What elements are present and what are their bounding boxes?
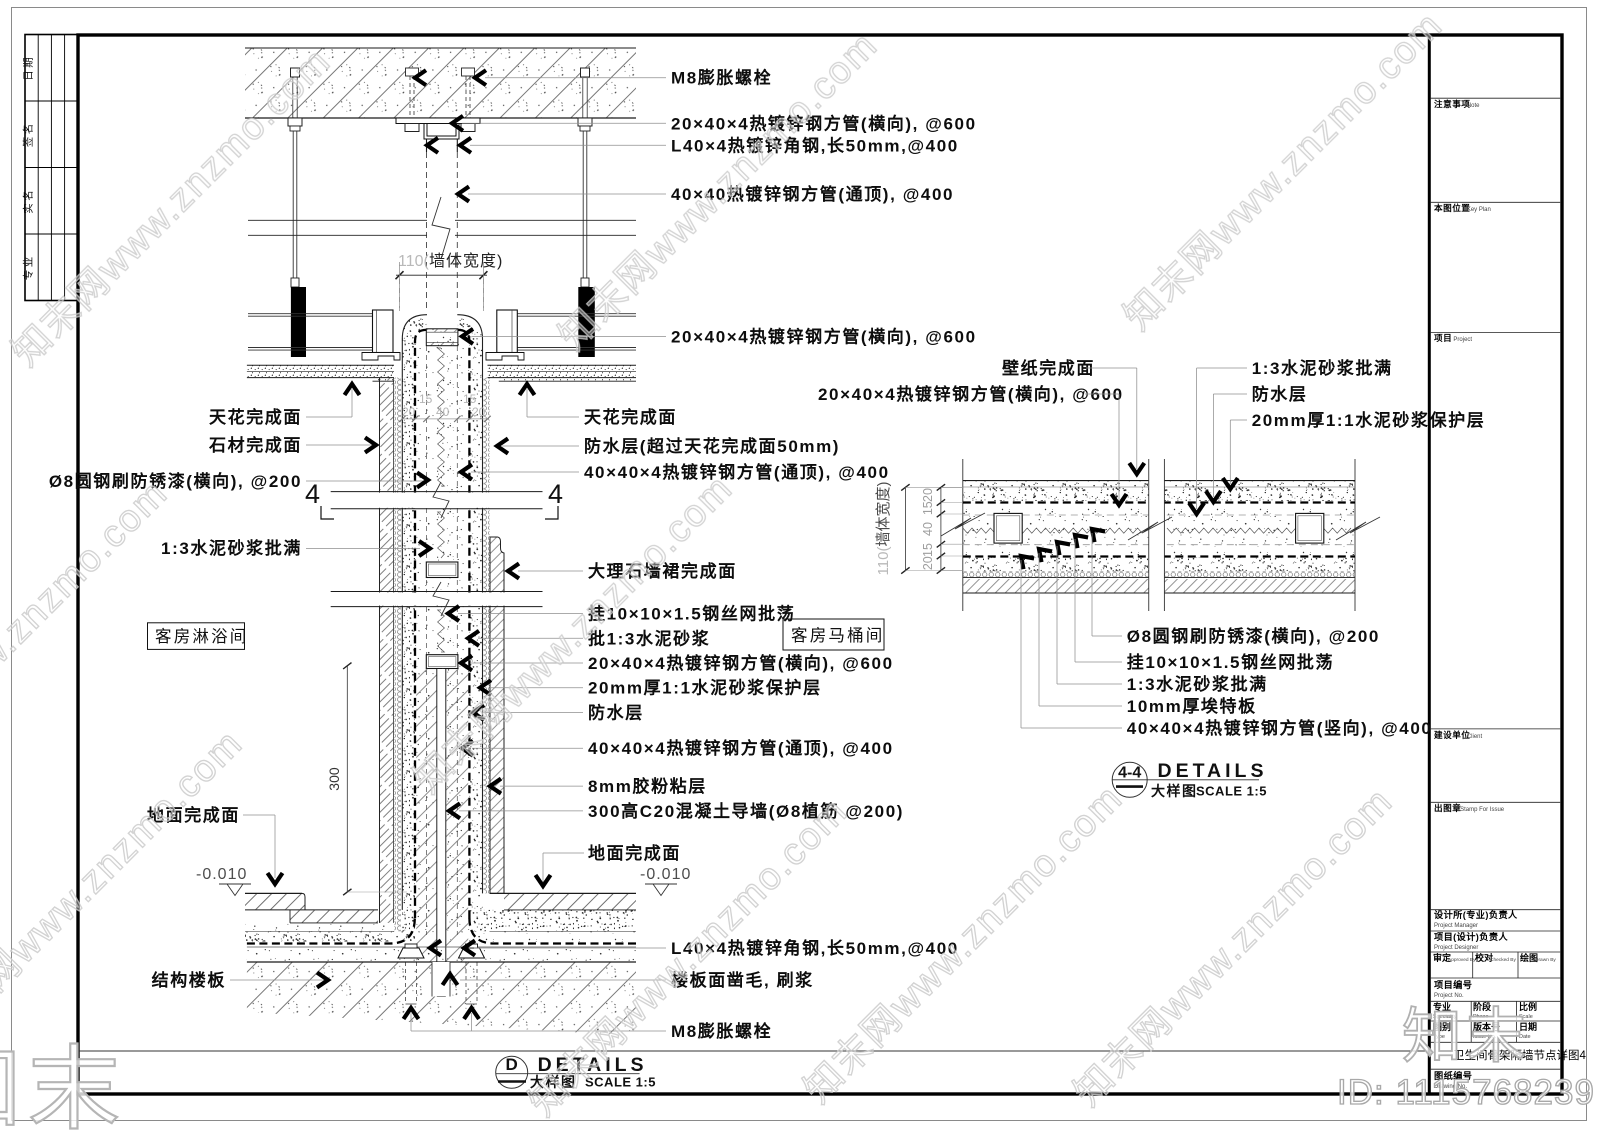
svg-text:ID: 1115768239: ID: 1115768239 — [1337, 1073, 1595, 1112]
svg-text:项目编号: 项目编号 — [1434, 979, 1472, 990]
svg-text:项目(设计)负责人: 项目(设计)负责人 — [1434, 931, 1508, 942]
svg-text:8mm胶粉粘层: 8mm胶粉粘层 — [588, 776, 707, 796]
svg-text:Project: Project — [1453, 337, 1472, 343]
svg-text:防水层: 防水层 — [1252, 384, 1308, 404]
svg-text:40: 40 — [436, 405, 450, 419]
svg-text:墙体宽度): 墙体宽度) — [429, 252, 503, 270]
svg-text:Project Designer: Project Designer — [1434, 945, 1478, 951]
svg-text:签名: 签名 — [22, 121, 35, 147]
svg-text:地面完成面: 地面完成面 — [588, 843, 681, 863]
svg-text:1:3水泥砂浆批满: 1:3水泥砂浆批满 — [1127, 674, 1268, 694]
svg-text:Project Manager: Project Manager — [1434, 923, 1478, 929]
svg-text:石材完成面: 石材完成面 — [208, 435, 302, 455]
svg-text:Approved By: Approved By — [1448, 957, 1476, 963]
svg-text:Client: Client — [1467, 734, 1483, 740]
svg-text:设计所(专业)负责人: 设计所(专业)负责人 — [1434, 909, 1518, 920]
svg-text:40×40×4热镀锌钢方管(竖向), @400: 40×40×4热镀锌钢方管(竖向), @400 — [1127, 718, 1433, 738]
svg-text:-0.010: -0.010 — [640, 866, 691, 883]
svg-text:知末: 知末 — [0, 1039, 126, 1131]
svg-text:项目: 项目 — [1434, 333, 1452, 343]
svg-text:防水层(超过天花完成面50mm): 防水层(超过天花完成面50mm) — [584, 436, 840, 456]
svg-text:Project No.: Project No. — [1434, 993, 1464, 999]
svg-text:20×40×4热镀锌钢方管(横向), @600: 20×40×4热镀锌钢方管(横向), @600 — [671, 113, 977, 133]
svg-text:客房淋浴间: 客房淋浴间 — [155, 627, 249, 646]
svg-text:Key Plan: Key Plan — [1467, 207, 1491, 213]
svg-text:壁纸完成面: 壁纸完成面 — [1002, 358, 1095, 378]
svg-text:20mm厚1:1水泥砂浆保护层: 20mm厚1:1水泥砂浆保护层 — [588, 678, 822, 698]
svg-text:防水层: 防水层 — [588, 703, 644, 723]
svg-text:15: 15 — [463, 392, 477, 406]
svg-text:L40×4热镀锌角钢,长50mm,@400: L40×4热镀锌角钢,长50mm,@400 — [671, 135, 959, 155]
svg-text:20: 20 — [921, 488, 935, 502]
svg-text:Ø8圆钢刷防锈漆(横向), @200: Ø8圆钢刷防锈漆(横向), @200 — [1127, 626, 1380, 646]
svg-text:挂10×10×1.5钢丝网批荡: 挂10×10×1.5钢丝网批荡 — [1127, 652, 1334, 672]
svg-text:日期: 日期 — [23, 55, 35, 81]
svg-text:大样图: 大样图 — [1151, 783, 1198, 799]
svg-text:15: 15 — [921, 501, 935, 515]
svg-text:注意事项: 注意事项 — [1434, 98, 1470, 109]
svg-text:40: 40 — [921, 522, 935, 536]
svg-text:SCALE 1:5: SCALE 1:5 — [1196, 784, 1267, 799]
svg-text:300高C20混凝土导墙(Ø8植筋 @200): 300高C20混凝土导墙(Ø8植筋 @200) — [588, 801, 904, 821]
svg-text:20mm厚1:1水泥砂浆保护层: 20mm厚1:1水泥砂浆保护层 — [1252, 410, 1486, 430]
svg-text:15: 15 — [419, 392, 433, 406]
svg-text:1:3水泥砂浆批满: 1:3水泥砂浆批满 — [161, 538, 302, 558]
svg-text:实名: 实名 — [22, 188, 35, 214]
svg-text:知末: 知末 — [1402, 1003, 1530, 1070]
svg-text:专业: 专业 — [22, 254, 35, 280]
svg-text:110(: 110( — [398, 253, 430, 270]
svg-text:1:3水泥砂浆批满: 1:3水泥砂浆批满 — [1252, 358, 1393, 378]
svg-text:Note: Note — [1467, 103, 1480, 109]
svg-text:15: 15 — [921, 543, 935, 557]
svg-text:出图章: 出图章 — [1434, 802, 1461, 813]
svg-text:20: 20 — [472, 405, 486, 419]
svg-text:20×40×4热镀锌钢方管(横向), @600: 20×40×4热镀锌钢方管(横向), @600 — [588, 653, 894, 673]
svg-text:-0.010: -0.010 — [196, 866, 247, 883]
svg-text:20×40×4热镀锌钢方管(横向), @600: 20×40×4热镀锌钢方管(横向), @600 — [671, 326, 977, 346]
svg-text:300: 300 — [326, 767, 342, 791]
svg-text:M8膨胀螺栓: M8膨胀螺栓 — [671, 68, 772, 88]
svg-text:40×40×4热镀锌钢方管(通顶), @400: 40×40×4热镀锌钢方管(通顶), @400 — [588, 738, 894, 758]
svg-text:天花完成面: 天花完成面 — [584, 407, 677, 427]
svg-text:DETAILS: DETAILS — [1158, 760, 1268, 782]
svg-text:20: 20 — [921, 556, 935, 570]
svg-text:Stamp For Issue: Stamp For Issue — [1460, 807, 1505, 813]
svg-text:4: 4 — [305, 479, 320, 509]
svg-text:4-4: 4-4 — [1118, 765, 1141, 782]
svg-text:110(墙体宽度): 110(墙体宽度) — [875, 482, 892, 576]
svg-text:结构楼板: 结构楼板 — [152, 970, 226, 990]
svg-text:4: 4 — [548, 479, 563, 509]
svg-text:M8膨胀螺栓: M8膨胀螺栓 — [671, 1021, 772, 1041]
svg-text:D: D — [506, 1055, 518, 1074]
svg-text:天花完成面: 天花完成面 — [209, 407, 302, 427]
svg-text:客房马桶间: 客房马桶间 — [791, 626, 885, 645]
svg-text:40×40×4热镀锌钢方管(通顶), @400: 40×40×4热镀锌钢方管(通顶), @400 — [584, 462, 890, 482]
svg-text:Checked By: Checked By — [1490, 957, 1516, 963]
svg-text:20×40×4热镀锌钢方管(横向), @600: 20×40×4热镀锌钢方管(横向), @600 — [818, 384, 1124, 404]
svg-text:本图位置: 本图位置 — [1434, 202, 1470, 213]
svg-text:Drawn By: Drawn By — [1535, 957, 1556, 963]
svg-text:建设单位: 建设单位 — [1433, 729, 1470, 740]
svg-text:10mm厚埃特板: 10mm厚埃特板 — [1127, 696, 1257, 716]
svg-text:Ø8圆钢刷防锈漆(横向), @200: Ø8圆钢刷防锈漆(横向), @200 — [49, 471, 302, 491]
